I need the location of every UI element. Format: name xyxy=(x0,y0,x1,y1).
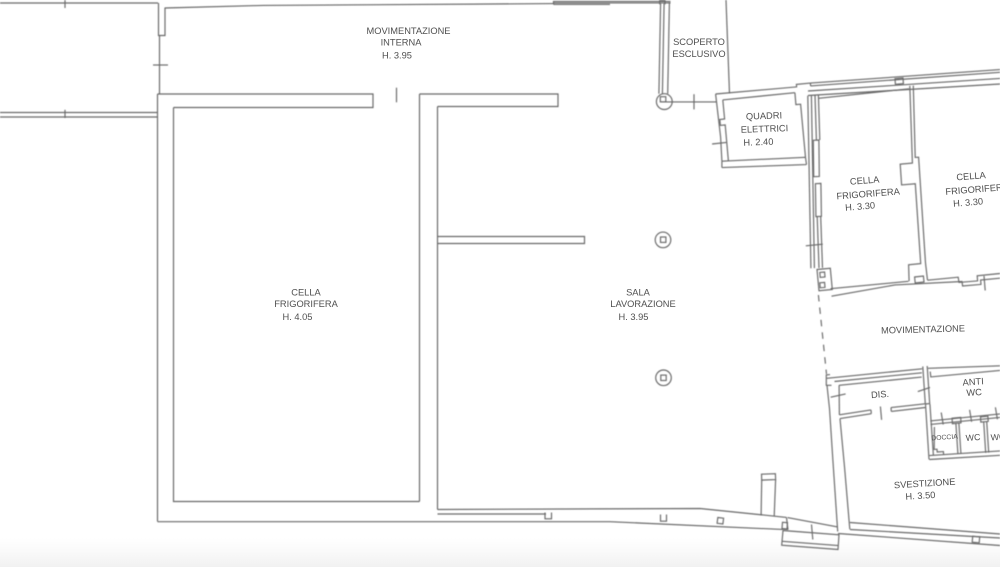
svg-text:H. 3.95: H. 3.95 xyxy=(619,312,649,322)
svg-text:H. 3.50: H. 3.50 xyxy=(905,490,936,502)
svg-text:LAVORAZIONE: LAVORAZIONE xyxy=(610,299,675,309)
svg-text:WC: WC xyxy=(965,432,981,443)
svg-text:QUADRI: QUADRI xyxy=(746,110,782,121)
svg-text:SCOPERTO: SCOPERTO xyxy=(673,37,725,47)
svg-text:INTERNA: INTERNA xyxy=(381,38,423,48)
svg-text:H. 2.40: H. 2.40 xyxy=(743,137,773,148)
svg-text:H. 3.95: H. 3.95 xyxy=(382,51,412,61)
svg-text:WC: WC xyxy=(990,431,1000,442)
svg-text:SALA: SALA xyxy=(626,288,651,298)
svg-text:FRIGORIFERA: FRIGORIFERA xyxy=(274,299,338,309)
svg-text:ANTI: ANTI xyxy=(962,376,984,387)
svg-text:ELETTRICI: ELETTRICI xyxy=(741,123,789,135)
svg-text:MOVIMENTAZIONE: MOVIMENTAZIONE xyxy=(366,26,450,36)
svg-text:CELLA: CELLA xyxy=(291,288,321,298)
svg-text:H. 4.05: H. 4.05 xyxy=(283,312,313,322)
svg-text:ESCLUSIVO: ESCLUSIVO xyxy=(672,49,725,59)
svg-text:WC: WC xyxy=(966,387,982,398)
svg-text:DIS.: DIS. xyxy=(871,389,890,400)
